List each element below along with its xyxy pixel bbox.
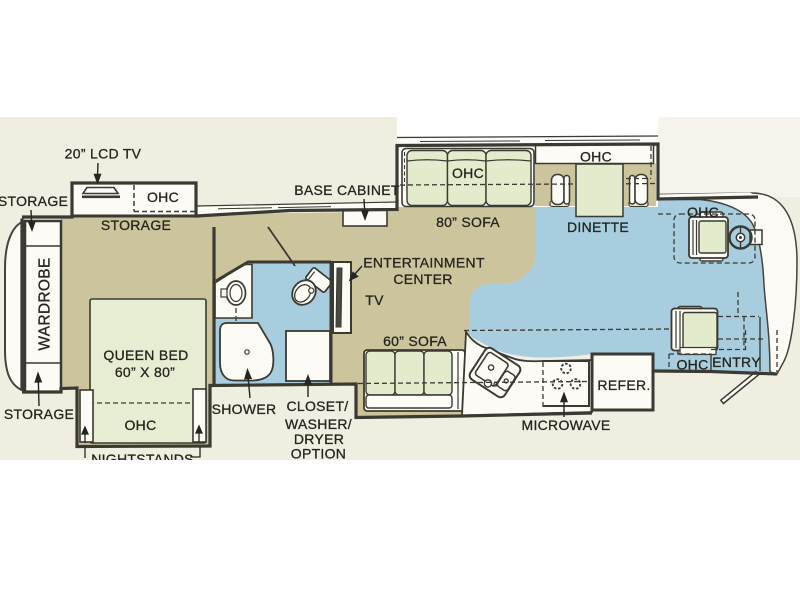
svg-text:OHC: OHC (676, 357, 708, 373)
svg-text:60” X 80”: 60” X 80” (115, 364, 175, 380)
svg-text:TV: TV (365, 292, 384, 308)
svg-text:BASE CABINET: BASE CABINET (294, 182, 400, 198)
svg-text:OPTION: OPTION (291, 446, 346, 462)
svg-text:ENTERTAINMENT: ENTERTAINMENT (363, 255, 485, 271)
svg-text:60” SOFA: 60” SOFA (383, 333, 447, 349)
svg-text:REFER.: REFER. (597, 377, 650, 393)
svg-text:OHC: OHC (580, 149, 612, 165)
svg-text:STORAGE: STORAGE (101, 217, 171, 233)
svg-text:STORAGE: STORAGE (0, 193, 68, 209)
svg-text:OHC: OHC (687, 204, 719, 220)
svg-text:CLOSET/: CLOSET/ (286, 398, 348, 414)
svg-text:WARDROBE: WARDROBE (37, 257, 54, 350)
svg-text:20” LCD TV: 20” LCD TV (65, 146, 142, 162)
svg-text:OHC: OHC (147, 189, 179, 205)
svg-text:ENTRY: ENTRY (712, 354, 761, 370)
svg-text:DINETTE: DINETTE (567, 219, 629, 235)
svg-text:CENTER: CENTER (393, 271, 452, 287)
svg-text:OHC: OHC (452, 165, 484, 181)
svg-text:MICROWAVE: MICROWAVE (521, 417, 610, 433)
svg-text:QUEEN BED: QUEEN BED (103, 347, 188, 363)
svg-text:SHOWER: SHOWER (212, 401, 277, 417)
svg-text:OHC: OHC (124, 417, 156, 433)
svg-text:WASHER/: WASHER/ (285, 416, 352, 432)
svg-text:80” SOFA: 80” SOFA (436, 214, 500, 230)
svg-text:STORAGE: STORAGE (4, 406, 74, 422)
